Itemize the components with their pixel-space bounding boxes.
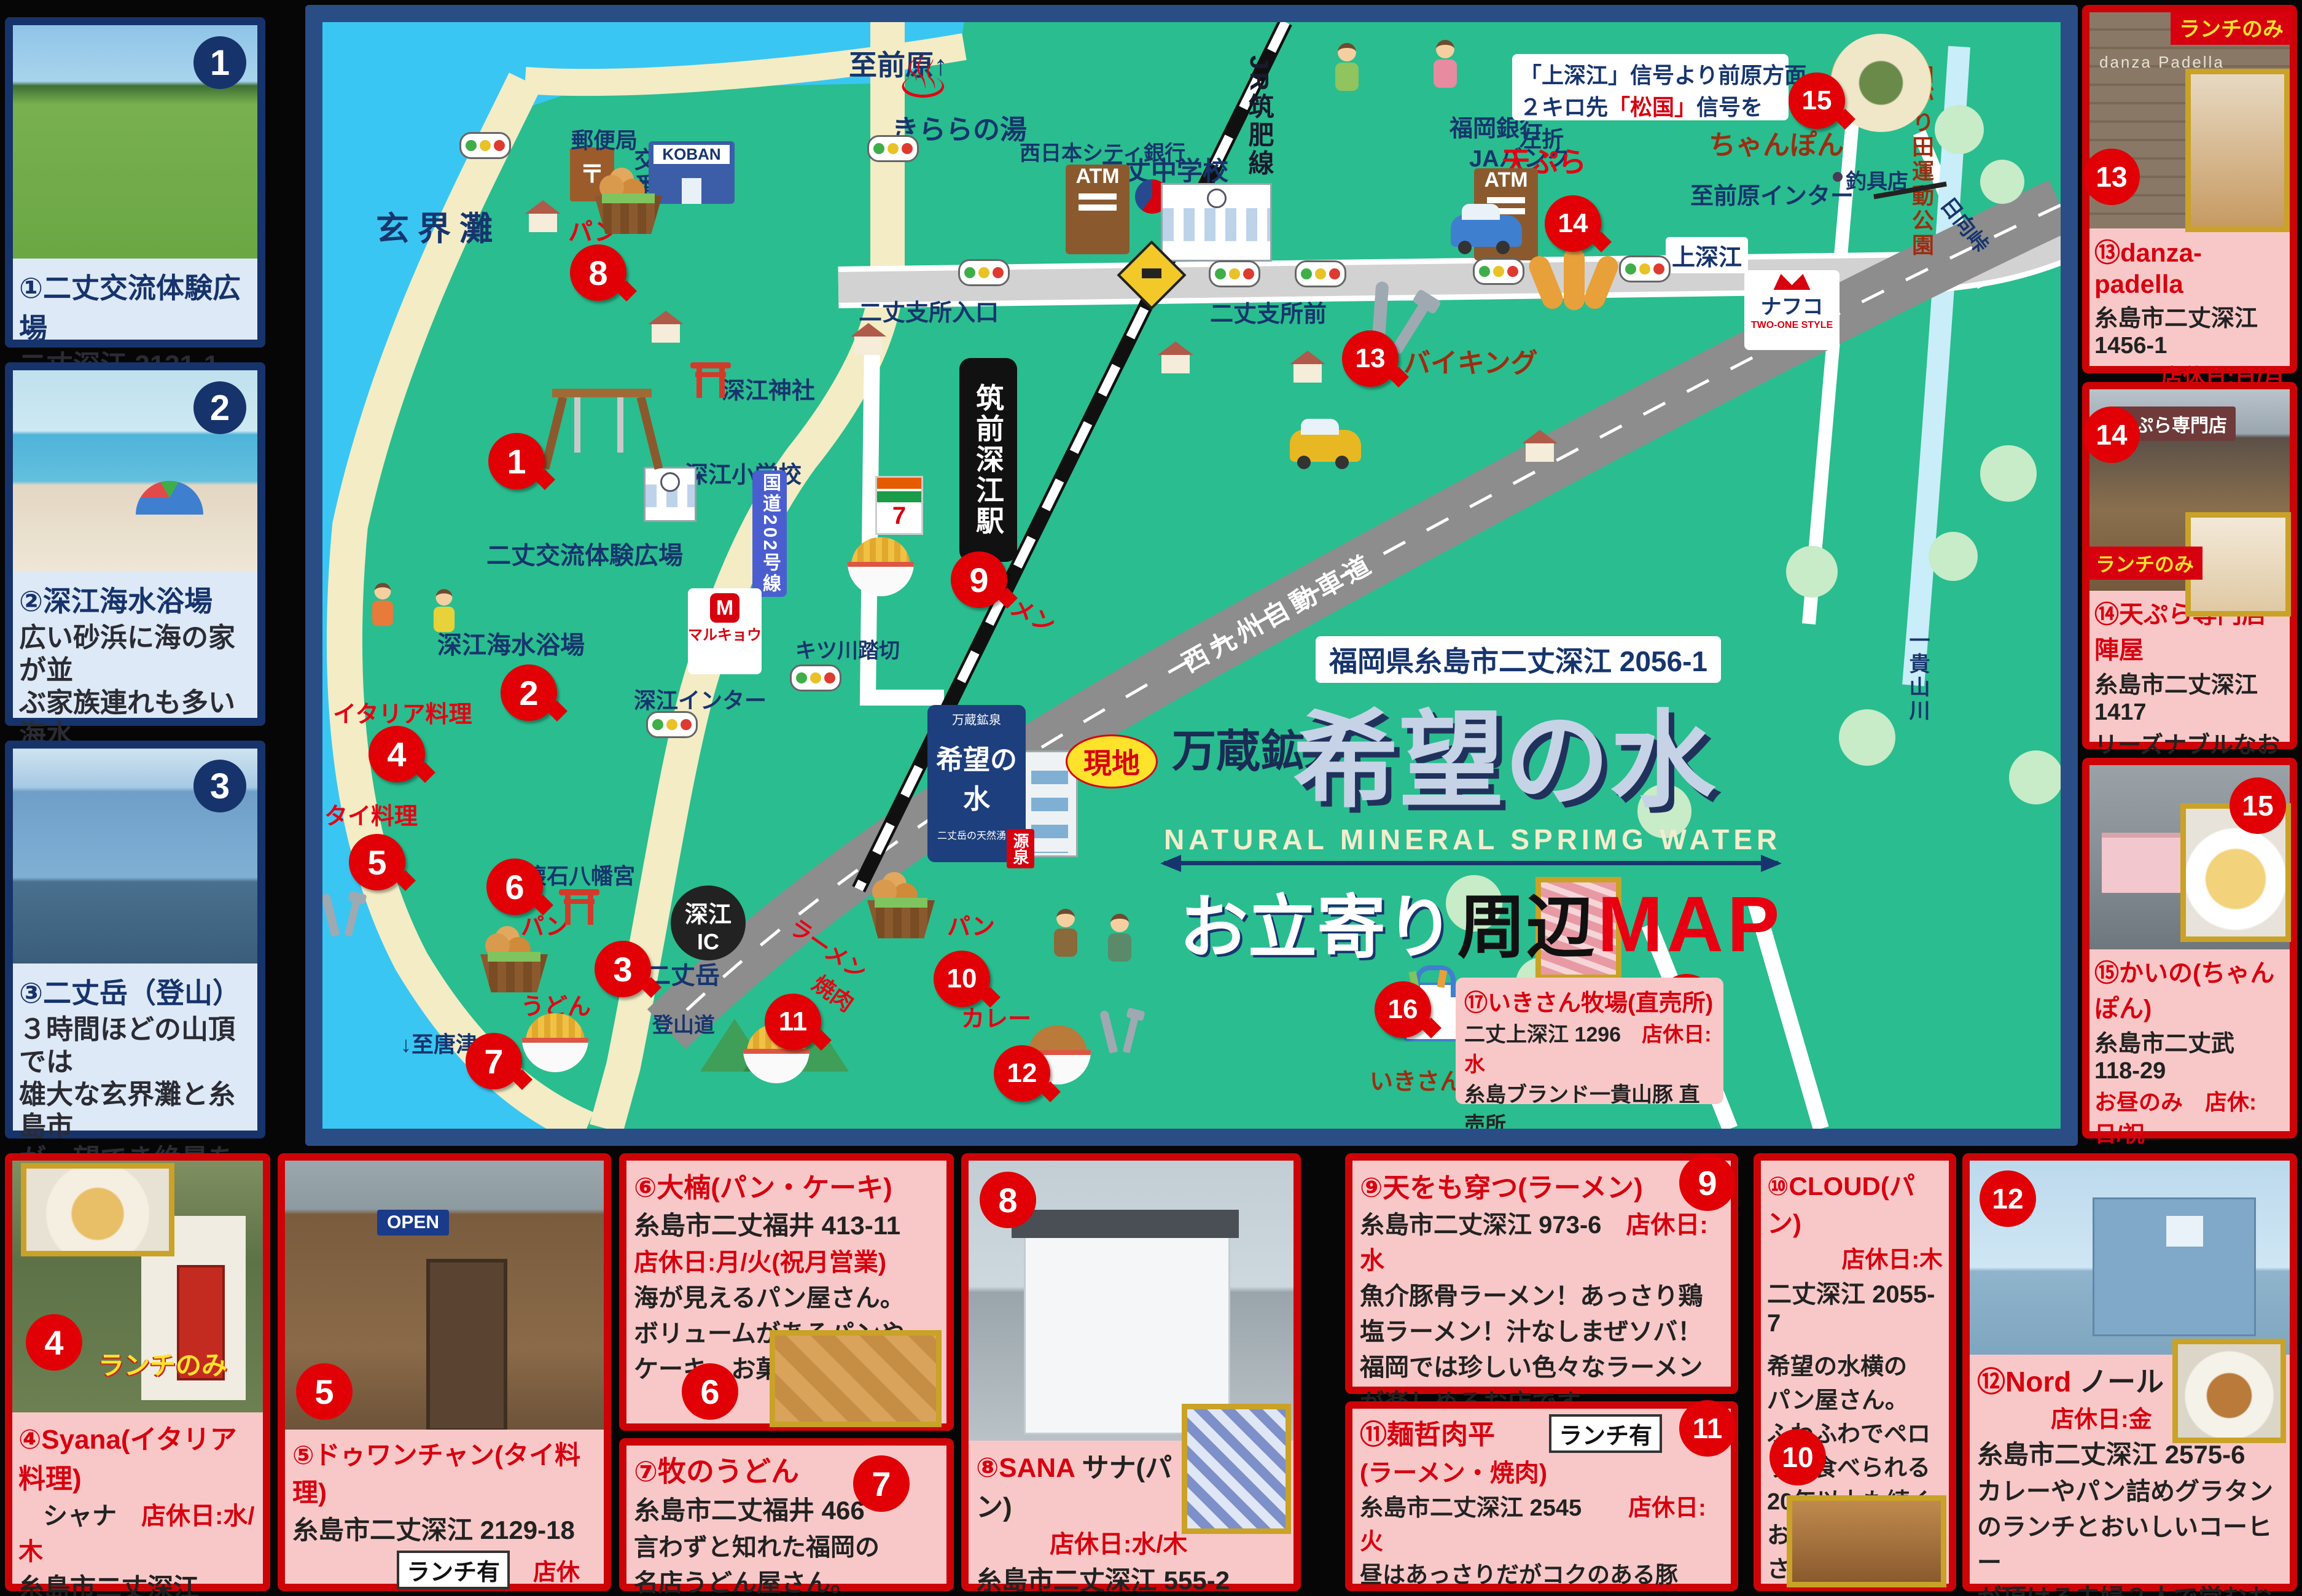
traffic-light xyxy=(958,259,1010,286)
bottom-card-4: 4 ランチのみ ④Syana(イタリア料理) シャナ 店休日:水/木 糸島市二丈… xyxy=(5,1153,270,1591)
card-title: ⑩CLOUD(パン) xyxy=(1767,1166,1943,1240)
marukyou-text: マルキョウ xyxy=(688,623,762,644)
card-address: 糸島市二丈武 118-29 xyxy=(2094,1024,2285,1084)
atm-text-2: ATM xyxy=(1484,168,1528,192)
swimmer-icon-1 xyxy=(370,583,395,629)
text-line: 雄大な玄界灘と糸島市 xyxy=(19,1079,251,1144)
label-koryu-hiroba: 二丈交流体験広場 xyxy=(486,535,683,571)
marukyou-logo-icon: M xyxy=(710,593,739,623)
map-marker-5: 5 xyxy=(349,834,405,890)
card-addr-line: 糸島市二丈深江 973-6 店休日:水 xyxy=(1360,1205,1723,1276)
label-fukae-jinja: 深江神社 xyxy=(722,372,815,405)
label-to-maebaru-ic: 至前原インター xyxy=(1690,177,1854,211)
marukyou-sign: M マルキョウ xyxy=(688,588,762,674)
torii-chinkaiseki xyxy=(559,889,599,925)
koban-building-icon: KOBAN xyxy=(649,141,735,204)
badge-7: 7 xyxy=(853,1455,910,1512)
traffic-light xyxy=(459,132,511,159)
brand-arrow xyxy=(1164,861,1778,865)
seven-text: 7 xyxy=(877,502,921,530)
card-holiday: 店休日:木 xyxy=(1767,1240,1943,1274)
card-desc: 骨ラーメン。夜は本格炭火で焼く xyxy=(1360,1589,1723,1596)
traffic-light xyxy=(646,711,698,738)
card-desc: のランチとおいしいコーヒー xyxy=(1977,1507,2282,1578)
card-desc: 魚介豚骨ラーメン！あっさり鶏 xyxy=(1360,1276,1723,1312)
bottom-card-8-text: ⑧SANA サナ(パン) 店休日:水/木 糸島市二丈深江 555-2 無添加天然… xyxy=(969,1441,1204,1596)
swimmer-icon-2 xyxy=(431,589,456,636)
label-italia: イタリア料理 xyxy=(333,695,472,729)
traffic-light xyxy=(1209,260,1260,287)
bottom-card-4-text: ④Syana(イタリア料理) シャナ 店休日:水/木 糸島市二丈深江 2129-… xyxy=(12,1412,263,1596)
map-marker-6: 6 xyxy=(486,858,543,915)
nafco-subtext: TWO-ONE STYLE xyxy=(1744,320,1840,331)
school-building-icon xyxy=(1161,183,1272,262)
badge-12: 12 xyxy=(1980,1170,2036,1227)
tempura-icon xyxy=(1529,243,1618,325)
route-202-text: 国道202号線 xyxy=(756,473,783,594)
map-marker-8: 8 xyxy=(570,244,626,301)
card-desc: 福岡では珍しい色々なラーメン xyxy=(1360,1347,1723,1383)
house-icon xyxy=(851,323,886,356)
bottom-card-12: 12 ⑫Nord ノール 店休日:金 糸島市二丈深江 2575-6 カレーやパン… xyxy=(1962,1153,2297,1591)
route-202-ribbon: 国道202号線 xyxy=(752,470,787,597)
map-marker-9: 9 xyxy=(951,551,1007,608)
seven-eleven-icon: 7 xyxy=(875,476,923,535)
card-address: 糸島市二丈深江 1417 xyxy=(2094,666,2285,726)
shop-door xyxy=(426,1259,507,1430)
map-marker-13: 13 xyxy=(1342,330,1399,387)
onsen-icon: ♨ xyxy=(895,41,951,112)
traffic-light xyxy=(1295,260,1346,287)
map-marker-15: 15 xyxy=(1789,72,1845,129)
card-title-line: ⑪麺哲肉平 ランチ有 xyxy=(1360,1412,1723,1453)
notice-box: 「上深江」信号より前原方面 ２キロ先「松国」信号を左折 xyxy=(1512,54,1789,120)
bottom-card-8: 8 ⑧SANA サナ(パン) 店休日:水/木 糸島市二丈深江 555-2 無添加… xyxy=(961,1153,1301,1591)
left-card-1-title: ①二丈交流体験広場 xyxy=(19,266,251,347)
house-icon xyxy=(1290,351,1325,384)
sign-name: 希望の水 xyxy=(931,738,1022,816)
card-title: ⑤ドゥワンチャン(タイ料理) xyxy=(292,1434,596,1509)
card-address: 糸島市二丈深江 2129-12 xyxy=(18,1567,257,1596)
atm-nishi-city: ATM xyxy=(1066,165,1130,254)
sign-company: 万蔵鉱泉 xyxy=(931,710,1022,728)
atm-text: ATM xyxy=(1075,165,1119,188)
card-address: 糸島市二丈深江 2129-18 xyxy=(292,1509,596,1547)
badge-8: 8 xyxy=(980,1172,1036,1228)
bottom-card-11: ⑪麺哲肉平 ランチ有 (ラーメン・焼肉) 糸島市二丈深江 2545 店休日:火 … xyxy=(1345,1401,1738,1591)
badge-6: 6 xyxy=(682,1363,738,1420)
card-address: 糸島市二丈福井 413-11 xyxy=(634,1205,939,1242)
card-address: 糸島市二丈深江 1456-1 xyxy=(2094,299,2285,359)
danza-interior-photo xyxy=(2185,69,2290,232)
car-blue-icon xyxy=(1451,215,1522,247)
bottom-card-9-text: ⑨天をも穿つ(ラーメン) 糸島市二丈深江 973-6 店休日:水 魚介豚骨ラーメ… xyxy=(1352,1161,1731,1423)
badge-4: 4 xyxy=(26,1314,82,1371)
badge-9: 9 xyxy=(1679,1154,1736,1211)
card-desc: 言わずと知れた福岡の xyxy=(634,1527,939,1563)
card-desc: が頂ける夫婦２人で営むお xyxy=(1977,1578,2282,1596)
left-card-2-title: ②深江海水浴場 xyxy=(19,579,251,620)
station-chikuzen-fukae: 筑前深江駅 xyxy=(959,358,1017,562)
lunch-only-note-4: ランチのみ xyxy=(98,1345,227,1382)
map-marker-2: 2 xyxy=(501,664,557,721)
map-marker-3: 3 xyxy=(595,941,651,997)
card-subtitle: (ラーメン・焼肉) xyxy=(1360,1453,1723,1489)
label-thai: タイ料理 xyxy=(324,797,418,831)
fukae-ic-circle: 深江 IC xyxy=(671,886,746,960)
nord-window xyxy=(2166,1216,2203,1247)
label-viking: バイキング xyxy=(1403,341,1538,380)
badge-13: 13 xyxy=(2083,149,2140,205)
map-panel: 玄界灘 至前原↑ ♨ きららの湯 郵便局 〒 交番 KOBAN パン JR筑肥線… xyxy=(305,5,2078,1146)
title-shuhen: 周辺 xyxy=(1457,889,1594,966)
badge-5: 5 xyxy=(296,1363,353,1420)
hiker-icon-1 xyxy=(1052,909,1080,960)
label-kami-fukae: 上深江 xyxy=(1666,237,1748,273)
shogakko-icon xyxy=(644,467,696,522)
badge-11: 11 xyxy=(1679,1400,1736,1457)
bottom-card-5-text: ⑤ドゥワンチャン(タイ料理) 糸島市二丈深江 2129-18 ランチ有 店休日:… xyxy=(285,1430,604,1596)
ikisan-desc: 糸島ブランド一貴山豚 直売所 xyxy=(1464,1078,1715,1138)
label-ikisan-river: 一貴山川 xyxy=(1903,629,1933,723)
koban-sign-text: KOBAN xyxy=(654,145,730,164)
card-desc: 昼はあっさりだがコクのある豚 xyxy=(1360,1556,1723,1589)
tsuriguten-dot xyxy=(1833,172,1843,182)
map-marker-1: 1 xyxy=(488,433,545,489)
car-yellow-icon xyxy=(1290,430,1361,462)
card-lunch-line: ランチ有 店休日:水 xyxy=(292,1551,596,1596)
traffic-light xyxy=(790,664,841,691)
bakery-photo-10 xyxy=(1787,1495,1946,1587)
kid-icon-1 xyxy=(1333,43,1361,95)
genchi-label: 現地 xyxy=(1066,734,1158,788)
card-title: ⑮かいの(ちゃんぽん) xyxy=(2094,953,2285,1024)
label-jr-chikuhi: JR筑肥線 xyxy=(1241,55,1278,178)
bottom-card-9: ⑨天をも穿つ(ラーメン) 糸島市二丈深江 973-6 店休日:水 魚介豚骨ラーメ… xyxy=(1345,1153,1738,1394)
left-card-3: 3 ③二丈岳（登山） ３時間ほどの山頂では 雄大な玄界灘と糸島市 が一望でき絶景… xyxy=(5,741,265,1139)
text-line: ３時間ほどの山頂では xyxy=(19,1014,251,1079)
bottom-card-5: OPEN 5 ⑤ドゥワンチャン(タイ料理) 糸島市二丈深江 2129-18 ラン… xyxy=(278,1153,611,1591)
notice-line2: ２キロ先「松国」信号を左折 xyxy=(1520,90,1781,154)
label-kitsukawa: キツ川踏切 xyxy=(795,634,900,664)
flyer-root: 玄界灘 至前原↑ ♨ きららの湯 郵便局 〒 交番 KOBAN パン JR筑肥線… xyxy=(0,0,2302,1596)
badge-10: 10 xyxy=(1769,1429,1826,1485)
kibou-no-mizu-sign: 万蔵鉱泉 希望の水 二丈岳の天然湧水 源泉 xyxy=(927,705,1026,862)
title-map-word: MAP xyxy=(1598,881,1783,968)
traffic-light xyxy=(1619,255,1671,282)
sign-seal: 源泉 xyxy=(1007,829,1034,868)
card-title: ⑥大楠(パン・ケーキ) xyxy=(634,1166,939,1205)
title-visit: お立寄り xyxy=(1179,889,1454,966)
ikisan-info-box: ⑰いきさん牧場(直売所) 二丈上深江 1296 店休日:水 糸島ブランド一貴山豚… xyxy=(1456,978,1723,1104)
left-card-3-number: 3 xyxy=(193,760,246,812)
label-genkainada: 玄界灘 xyxy=(376,201,501,250)
lunch-only-tag-14: ランチのみ xyxy=(2087,547,2203,580)
hiker-icon-2 xyxy=(1106,914,1134,965)
lunch-only-tag-13: ランチのみ xyxy=(2171,10,2292,45)
card-desc: 塩ラーメン！汁なしまぜソバ！ xyxy=(1360,1312,1723,1347)
nafco-logo-icon xyxy=(1774,274,1811,290)
brand-english: NATURAL MINERAL SPRIMG WATER xyxy=(1164,823,1781,856)
map-marker-16: 16 xyxy=(1375,981,1431,1038)
bread-photo-6 xyxy=(770,1330,942,1427)
left-card-1: 1 ①二丈交流体験広場 二丈深江 2131-1 広い芝生でのんびり過 ごせます。… xyxy=(5,17,265,348)
nafco-sign: ナフコ TWO-ONE STYLE xyxy=(1744,270,1840,350)
map-title-line: お立寄り 周辺 MAP xyxy=(1179,872,1783,971)
map-marker-11: 11 xyxy=(765,994,821,1050)
house-icon xyxy=(1522,430,1558,463)
map-marker-7: 7 xyxy=(466,1033,522,1089)
bottom-card-10: ⑩CLOUD(パン) 店休日:木 二丈深江 2055-7 希望の水横の パン屋さ… xyxy=(1754,1153,1956,1591)
left-card-1-number: 1 xyxy=(193,36,246,89)
house-icon xyxy=(525,200,561,233)
bottom-card-6: ⑥大楠(パン・ケーキ) 糸島市二丈福井 413-11 店休日:月/火(祝月営業)… xyxy=(619,1153,954,1431)
map-marker-10: 10 xyxy=(934,951,990,1007)
left-card-2-number: 2 xyxy=(193,381,246,434)
card-address: 二丈深江 2055-7 xyxy=(1767,1274,1943,1337)
bottom-card-11-text: ⑪麺哲肉平 ランチ有 (ラーメン・焼肉) 糸島市二丈深江 2545 店休日:火 … xyxy=(1352,1409,1731,1596)
ikisan-title: ⑰いきさん牧場(直売所) xyxy=(1464,984,1715,1018)
kid-icon-2 xyxy=(1431,40,1459,91)
house-icon xyxy=(1158,341,1193,375)
label-kaisui: 深江海水浴場 xyxy=(437,625,585,661)
open-sign: OPEN xyxy=(377,1210,449,1236)
right-card-13: danza Padella ランチのみ 13 ⑬danza-padella 糸島… xyxy=(2082,5,2297,373)
left-card-3-title: ③二丈岳（登山） xyxy=(19,971,251,1011)
card-desc: 海が見えるパン屋さん。 xyxy=(634,1278,939,1314)
house-icon xyxy=(648,311,684,344)
map-marker-14: 14 xyxy=(1545,195,1601,252)
station-name: 筑前深江駅 xyxy=(968,383,1009,537)
label-fukae-inter: 深江インター xyxy=(634,683,767,715)
card-desc: パン屋さん。 xyxy=(1767,1381,1943,1415)
koban-door xyxy=(682,178,701,204)
bottom-card-7: ⑦牧のうどん 糸島市二丈福井 466 言わずと知れた福岡の 名店うどん屋さん。 … xyxy=(619,1438,954,1591)
traffic-light xyxy=(867,135,919,162)
sandwich-photo xyxy=(1182,1404,1291,1534)
label-pan-10: パン xyxy=(947,908,995,941)
map-marker-12: 12 xyxy=(994,1045,1050,1102)
traffic-light xyxy=(1473,258,1524,285)
card-title: ⑬danza-padella xyxy=(2094,232,2285,299)
card-notice-line: お昼のみ 店休:日/祝 xyxy=(2094,1084,2285,1148)
card-desc: 希望の水横の xyxy=(1767,1347,1943,1381)
card-addr-line: 糸島市二丈深江 2545 店休日:火 xyxy=(1360,1489,1723,1556)
playground-icon xyxy=(550,378,654,470)
curry-photo-12 xyxy=(2172,1339,2286,1443)
nafco-text: ナフコ xyxy=(1744,290,1840,320)
map-marker-4: 4 xyxy=(369,726,425,782)
label-shisho-iriguchi: 二丈支所入口 xyxy=(859,294,999,327)
card-title-line: ⑧SANA サナ(パン) xyxy=(976,1446,1197,1524)
notice-line1: 「上深江」信号より前原方面 xyxy=(1520,58,1781,90)
card-title: ④Syana(イタリア料理) xyxy=(18,1417,257,1496)
badge-14: 14 xyxy=(2083,407,2140,463)
badge-15: 15 xyxy=(2230,777,2286,834)
fukae-ic-line1: 深江 xyxy=(671,895,746,929)
right-card-15: 15 ⑮かいの(ちゃんぽん) 糸島市二丈武 118-29 お昼のみ 店休:日/祝… xyxy=(2082,758,2297,1139)
fukae-ic-line2: IC xyxy=(671,929,746,955)
left-card-2: 2 ②深江海水浴場 広い砂浜に海の家が並 ぶ家族連れも多い海水 浴場。キレイな夕… xyxy=(5,362,265,726)
right-card-14: 天ぷら専門店 14 ランチのみ ⑭天ぷら専門店 陣屋 糸島市二丈深江 1417 … xyxy=(2082,382,2297,749)
card-title: ⑨天をも穿つ(ラーメン) xyxy=(1360,1166,1723,1205)
card-holiday: 店休日:水/木 xyxy=(1050,1524,1197,1560)
label-shisho-mae: 二丈支所前 xyxy=(1210,295,1327,329)
card-holiday: 店休日:月/火(祝月営業) xyxy=(634,1242,939,1278)
card-desc: カレーやパン詰めグラタン xyxy=(1977,1471,2282,1507)
card-address: 糸島市二丈深江 555-2 xyxy=(976,1560,1197,1596)
sana-roof xyxy=(1012,1210,1239,1238)
card-sub-line: シャナ 店休日:水/木 xyxy=(18,1496,257,1567)
text-line: 広い砂浜に海の家が並 xyxy=(19,622,251,687)
pasta-photo xyxy=(21,1163,174,1256)
card-desc: 名店うどん屋さん。 xyxy=(634,1563,939,1596)
brand-name: 希望の水 xyxy=(1293,674,1715,828)
torii-fukae-jinja xyxy=(690,362,731,398)
